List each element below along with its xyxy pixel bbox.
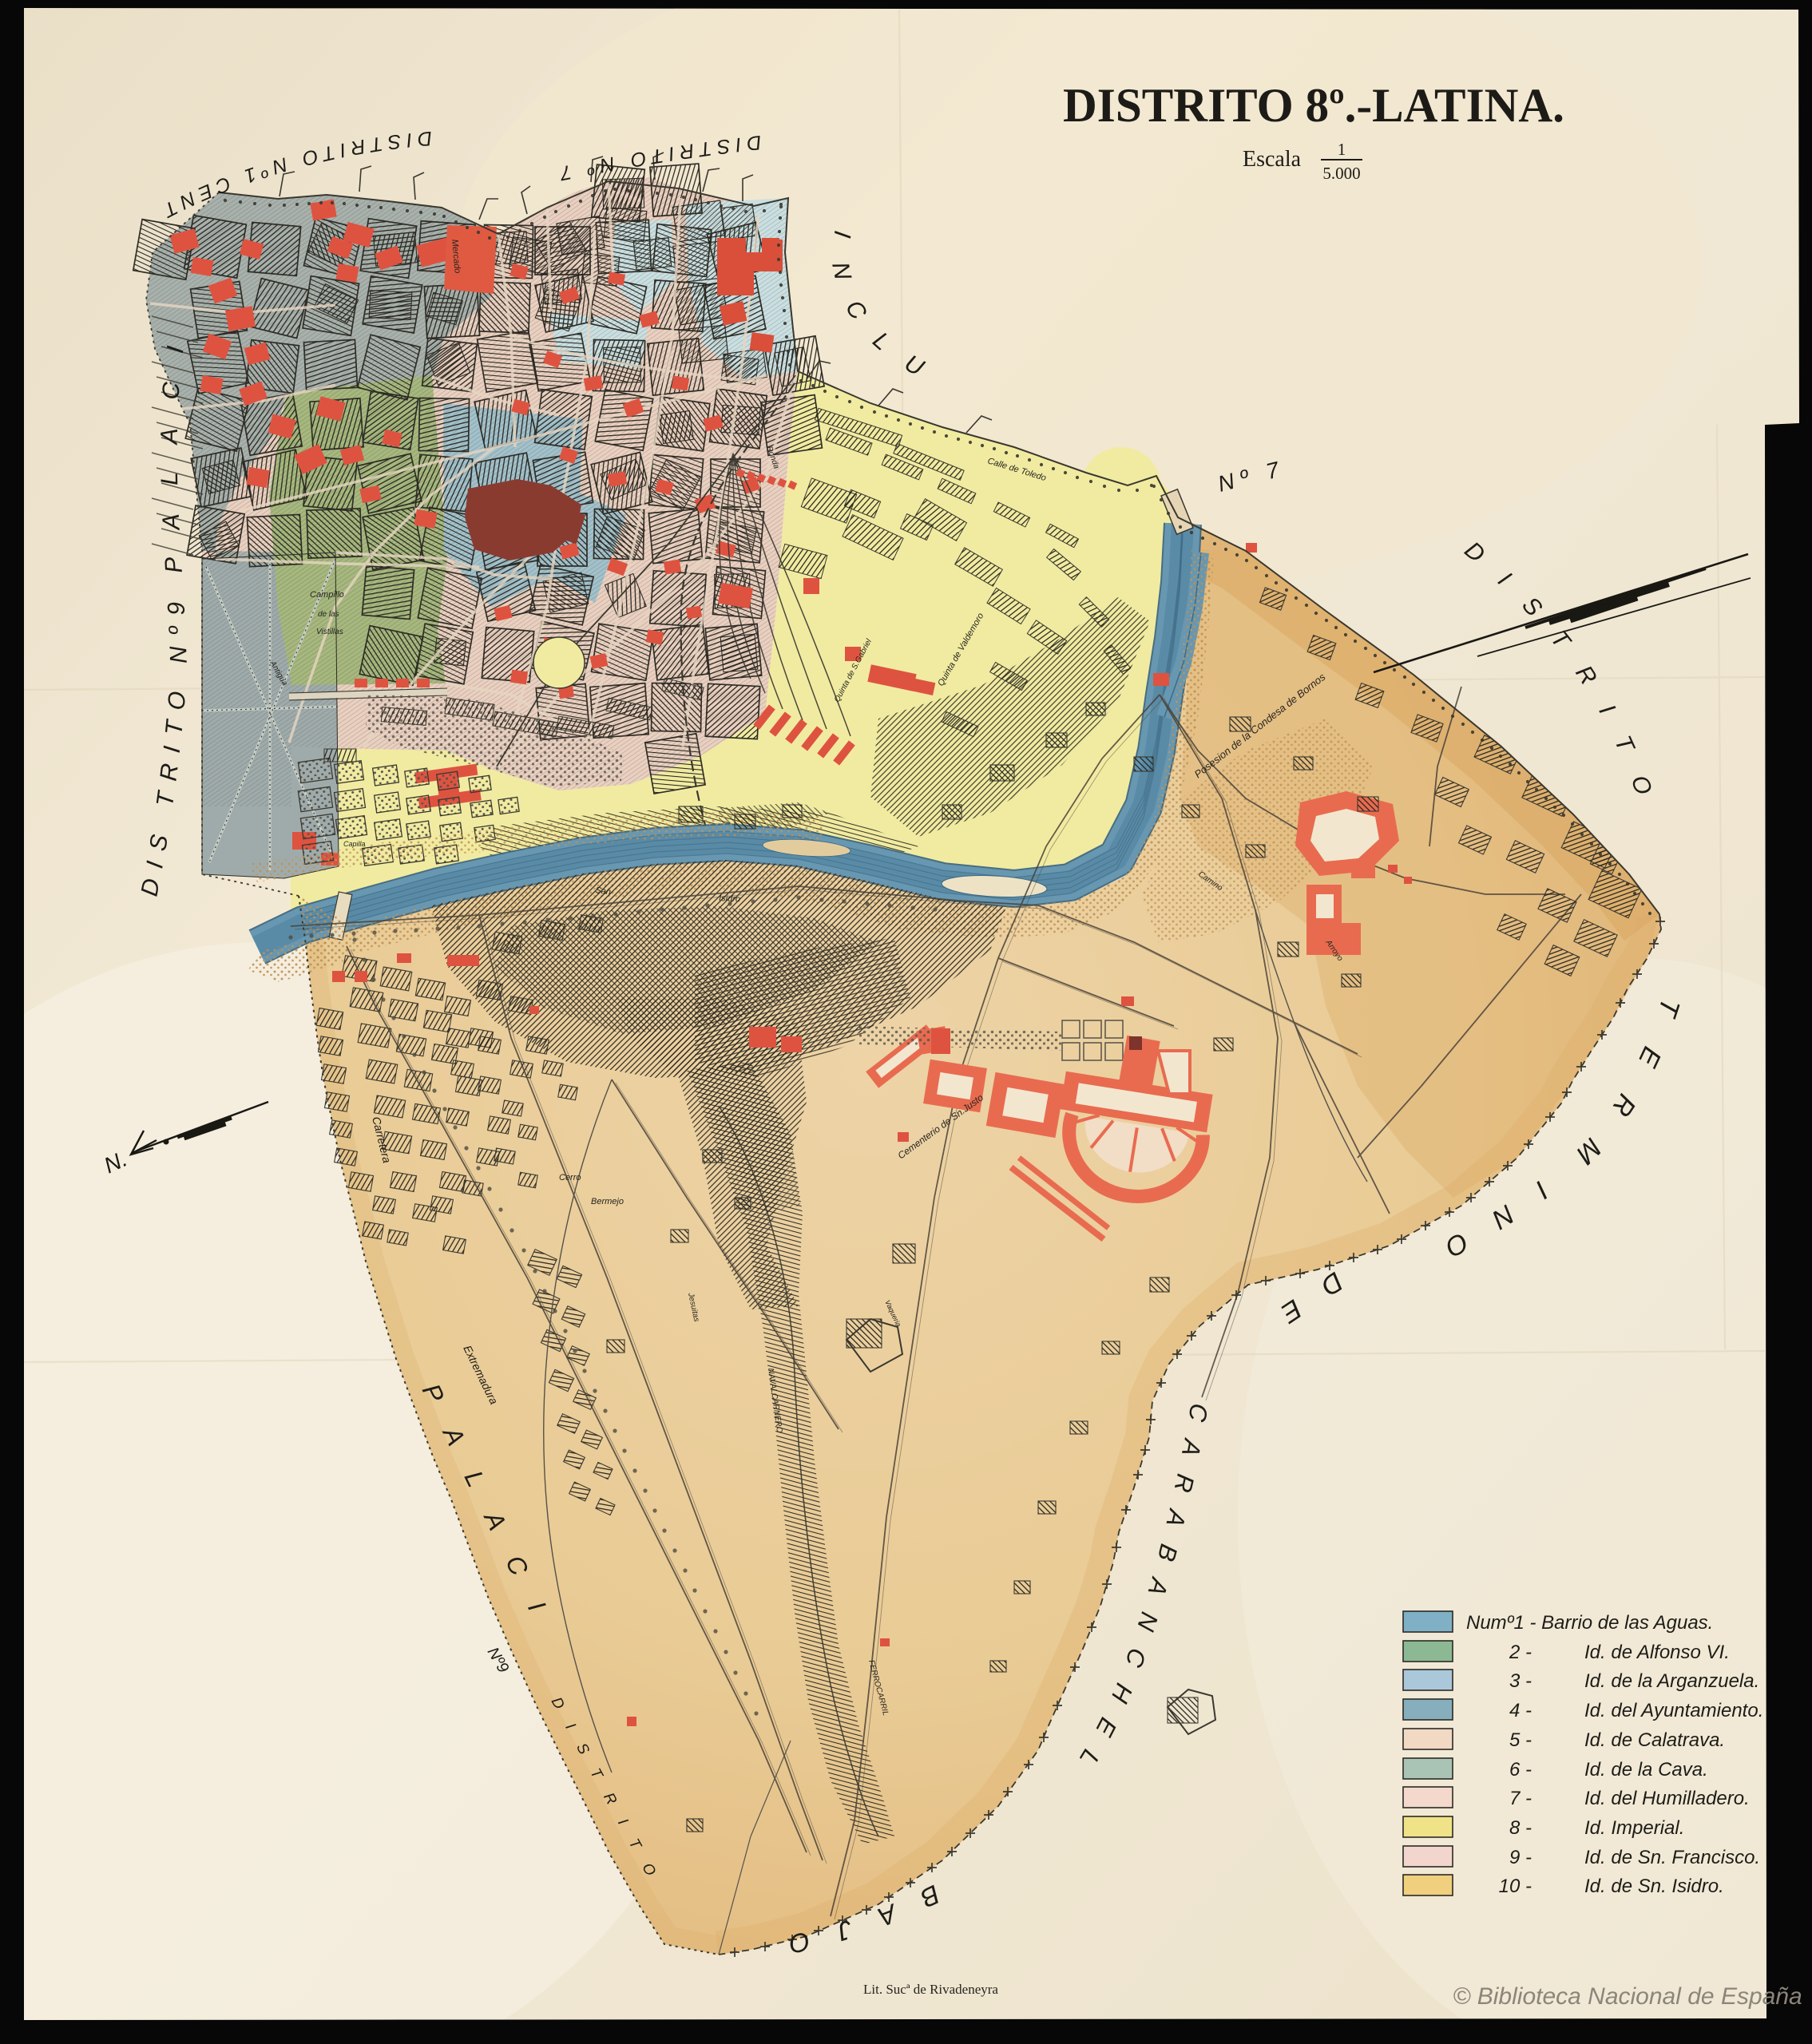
svg-text:Id. de la Cava.: Id. de la Cava. bbox=[1584, 1759, 1708, 1781]
svg-text:Isidro: Isidro bbox=[719, 893, 740, 904]
svg-text:Id. Imperial.: Id. Imperial. bbox=[1584, 1817, 1684, 1839]
svg-text:6 -: 6 - bbox=[1509, 1759, 1532, 1781]
svg-text:Id. de Calatrava.: Id. de Calatrava. bbox=[1584, 1729, 1725, 1751]
svg-text:© Biblioteca Nacional de Españ: © Biblioteca Nacional de España bbox=[1453, 1983, 1802, 2010]
svg-text:de las: de las bbox=[318, 610, 339, 619]
svg-text:Id. de Sn. Francisco.: Id. de Sn. Francisco. bbox=[1584, 1847, 1760, 1868]
svg-text:4 -: 4 - bbox=[1509, 1700, 1532, 1721]
svg-text:7 -: 7 - bbox=[1509, 1788, 1532, 1809]
svg-text:Cerro: Cerro bbox=[559, 1173, 581, 1182]
svg-text:1: 1 bbox=[1338, 140, 1346, 159]
svg-text:Vistillas: Vistillas bbox=[316, 628, 343, 636]
svg-text:Numº1 - Barrio de las Aguas.: Numº1 - Barrio de las Aguas. bbox=[1466, 1612, 1713, 1634]
svg-text:Id. del Humilladero.: Id. del Humilladero. bbox=[1584, 1788, 1750, 1809]
svg-text:5 -: 5 - bbox=[1509, 1729, 1532, 1751]
svg-text:Escala: Escala bbox=[1243, 147, 1302, 172]
svg-text:2 -: 2 - bbox=[1509, 1642, 1532, 1663]
svg-text:Id. de Sn. Isidro.: Id. de Sn. Isidro. bbox=[1584, 1876, 1724, 1897]
svg-text:Lit. Sucª de Rivadeneyra: Lit. Sucª de Rivadeneyra bbox=[863, 1982, 998, 1997]
svg-text:Id. de la Arganzuela.: Id. de la Arganzuela. bbox=[1584, 1670, 1759, 1692]
svg-text:3 -: 3 - bbox=[1509, 1670, 1532, 1692]
svg-text:8 -: 8 - bbox=[1509, 1817, 1532, 1839]
svg-text:Id. de Alfonso VI.: Id. de Alfonso VI. bbox=[1584, 1642, 1730, 1663]
svg-text:Bermejo: Bermejo bbox=[591, 1197, 624, 1206]
svg-text:9 -: 9 - bbox=[1509, 1847, 1532, 1868]
svg-text:10 -: 10 - bbox=[1499, 1876, 1532, 1897]
svg-text:Campillo: Campillo bbox=[310, 590, 344, 600]
svg-text:5.000: 5.000 bbox=[1322, 164, 1360, 183]
svg-text:Id. del Ayuntamiento.: Id. del Ayuntamiento. bbox=[1584, 1700, 1763, 1721]
svg-text:DISTRITO 8º.-LATINA.: DISTRITO 8º.-LATINA. bbox=[1063, 79, 1564, 132]
svg-text:Capilla: Capilla bbox=[343, 840, 366, 848]
